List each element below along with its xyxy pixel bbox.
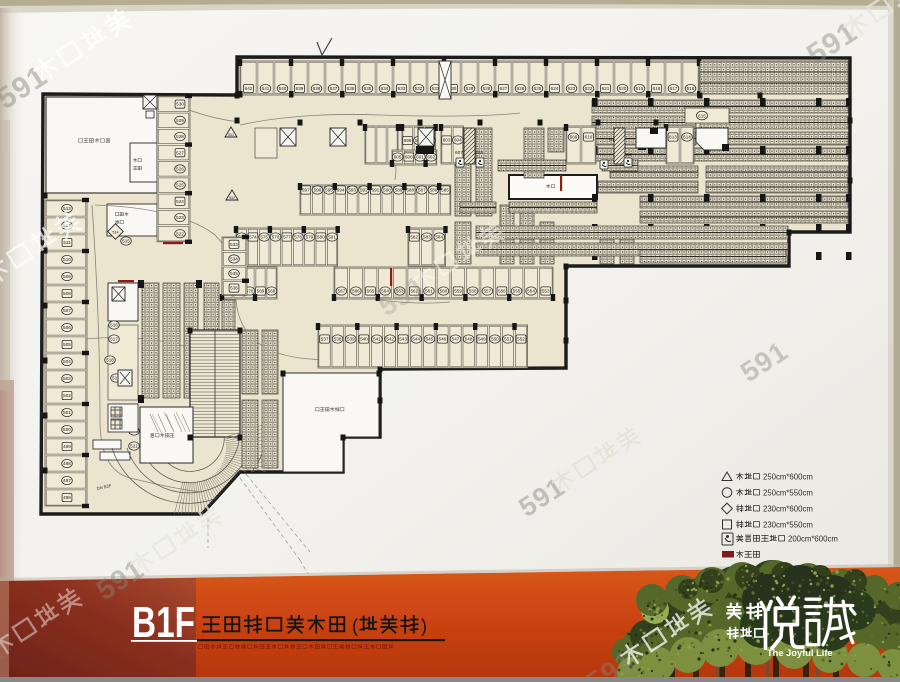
svg-text:510: 510 xyxy=(63,257,71,262)
svg-text:521: 521 xyxy=(130,444,138,449)
svg-text:634: 634 xyxy=(381,86,389,91)
svg-text:558: 558 xyxy=(469,289,477,294)
svg-text:574: 574 xyxy=(249,235,257,240)
svg-text:546: 546 xyxy=(439,337,447,342)
svg-text:616: 616 xyxy=(687,86,695,91)
svg-text:525: 525 xyxy=(176,183,184,188)
svg-text:590: 590 xyxy=(383,188,391,193)
svg-text:517: 517 xyxy=(110,337,118,342)
svg-text:607: 607 xyxy=(455,150,463,156)
svg-text:642: 642 xyxy=(245,86,253,91)
svg-text:545: 545 xyxy=(426,337,434,342)
svg-text:638: 638 xyxy=(313,86,321,91)
svg-text:528: 528 xyxy=(176,134,184,139)
svg-text:629: 629 xyxy=(466,86,474,91)
svg-text:633: 633 xyxy=(398,86,406,91)
svg-text:501: 501 xyxy=(63,410,71,415)
svg-text:531: 531 xyxy=(228,133,234,137)
svg-text:552: 552 xyxy=(517,337,525,342)
svg-text:533: 533 xyxy=(230,242,238,247)
svg-text:567: 567 xyxy=(337,289,345,294)
svg-text:557: 557 xyxy=(483,289,491,294)
svg-text:(: ( xyxy=(352,616,358,636)
svg-text:596: 596 xyxy=(314,188,322,193)
svg-text:554: 554 xyxy=(527,289,535,294)
svg-text:602: 602 xyxy=(427,155,435,160)
svg-text:527: 527 xyxy=(176,150,184,155)
svg-text:641: 641 xyxy=(262,86,270,91)
svg-text:615: 615 xyxy=(698,113,706,118)
svg-text:547: 547 xyxy=(452,337,460,342)
svg-text:577: 577 xyxy=(283,235,291,240)
svg-text:556: 556 xyxy=(498,289,506,294)
svg-text:624: 624 xyxy=(551,86,559,91)
svg-text:230cm*550cm: 230cm*550cm xyxy=(763,520,813,529)
svg-text:635: 635 xyxy=(364,86,372,91)
svg-text:518: 518 xyxy=(106,358,114,363)
svg-text:504: 504 xyxy=(63,359,71,364)
svg-text:583: 583 xyxy=(423,235,431,240)
svg-text:The Joyful Life: The Joyful Life xyxy=(767,648,833,658)
svg-text:623: 623 xyxy=(568,86,576,91)
svg-text:621: 621 xyxy=(602,86,610,91)
svg-text:511: 511 xyxy=(63,240,71,245)
svg-text:605: 605 xyxy=(394,155,402,160)
svg-text:502: 502 xyxy=(63,393,71,398)
svg-text:608: 608 xyxy=(475,150,483,156)
svg-text:579: 579 xyxy=(306,235,314,240)
svg-text:536: 536 xyxy=(230,286,238,291)
svg-text:618: 618 xyxy=(653,86,661,91)
svg-text:505: 505 xyxy=(63,342,71,347)
svg-text:535: 535 xyxy=(230,271,238,276)
svg-text:496: 496 xyxy=(63,495,71,500)
svg-text:581: 581 xyxy=(328,235,336,240)
svg-text:603: 603 xyxy=(443,138,451,143)
svg-text:230cm*600cm: 230cm*600cm xyxy=(763,504,813,513)
svg-text:594: 594 xyxy=(337,188,345,193)
svg-text:640: 640 xyxy=(279,86,287,91)
svg-text:539: 539 xyxy=(347,337,355,342)
svg-text:523: 523 xyxy=(176,215,184,220)
svg-text:617: 617 xyxy=(670,86,678,91)
svg-text:542: 542 xyxy=(386,337,394,342)
svg-text:636: 636 xyxy=(347,86,355,91)
svg-text:532: 532 xyxy=(229,196,235,200)
svg-text:B1F: B1F xyxy=(132,598,195,647)
svg-text:568: 568 xyxy=(268,289,276,294)
svg-text:606: 606 xyxy=(405,155,413,160)
svg-text:609: 609 xyxy=(570,135,578,140)
svg-text:593: 593 xyxy=(348,188,356,193)
svg-text:514: 514 xyxy=(112,231,118,235)
svg-text:613: 613 xyxy=(669,135,677,140)
svg-text:553: 553 xyxy=(542,289,550,294)
svg-text:503: 503 xyxy=(63,376,71,381)
svg-text:538: 538 xyxy=(334,337,342,342)
svg-text:601: 601 xyxy=(416,155,424,160)
svg-text:566: 566 xyxy=(352,289,360,294)
svg-text:584: 584 xyxy=(435,235,443,240)
svg-text:551: 551 xyxy=(504,337,512,342)
svg-text:524: 524 xyxy=(176,199,184,204)
svg-text:619: 619 xyxy=(636,86,644,91)
svg-text:530: 530 xyxy=(176,102,184,107)
svg-text:250cm*550cm: 250cm*550cm xyxy=(763,488,813,497)
svg-text:498: 498 xyxy=(63,461,71,466)
svg-text:499: 499 xyxy=(63,444,71,449)
svg-text:541: 541 xyxy=(373,337,381,342)
svg-text:626: 626 xyxy=(517,86,525,91)
svg-text:595: 595 xyxy=(325,188,333,193)
svg-text:578: 578 xyxy=(294,235,302,240)
svg-text:507: 507 xyxy=(63,308,71,313)
svg-text:526: 526 xyxy=(176,167,184,172)
svg-text:632: 632 xyxy=(415,86,423,91)
svg-text:610: 610 xyxy=(585,135,593,140)
svg-text:534: 534 xyxy=(230,257,238,262)
svg-text:500: 500 xyxy=(63,427,71,432)
svg-text:604: 604 xyxy=(454,138,462,143)
svg-text:582: 582 xyxy=(410,235,418,240)
svg-text:): ) xyxy=(421,616,427,636)
svg-text:540: 540 xyxy=(360,337,368,342)
svg-text:637: 637 xyxy=(330,86,338,91)
svg-text:589: 589 xyxy=(395,188,403,193)
svg-text:544: 544 xyxy=(412,337,420,342)
svg-text:513: 513 xyxy=(63,206,71,211)
svg-text:559: 559 xyxy=(454,289,462,294)
svg-text:548: 548 xyxy=(465,337,473,342)
svg-text:555: 555 xyxy=(513,289,521,294)
svg-text:515: 515 xyxy=(122,239,130,244)
svg-text:585: 585 xyxy=(441,188,449,193)
svg-text:569: 569 xyxy=(257,289,265,294)
svg-text:529: 529 xyxy=(176,118,184,123)
svg-text:620: 620 xyxy=(619,86,627,91)
svg-text:200cm*600cm: 200cm*600cm xyxy=(788,534,838,543)
svg-text:614: 614 xyxy=(683,135,691,140)
svg-text:576: 576 xyxy=(272,235,280,240)
svg-text:592: 592 xyxy=(360,188,368,193)
svg-text:625: 625 xyxy=(534,86,542,91)
svg-text:597: 597 xyxy=(302,188,310,193)
svg-text:550: 550 xyxy=(491,337,499,342)
svg-text:506: 506 xyxy=(63,325,71,330)
svg-text:509: 509 xyxy=(63,274,71,279)
svg-text:627: 627 xyxy=(500,86,508,91)
svg-text:497: 497 xyxy=(63,478,71,483)
svg-text:639: 639 xyxy=(296,86,304,91)
svg-text:591: 591 xyxy=(372,188,380,193)
svg-text:586: 586 xyxy=(430,188,438,193)
svg-text:537: 537 xyxy=(321,337,329,342)
svg-text:622: 622 xyxy=(585,86,593,91)
svg-text:587: 587 xyxy=(418,188,426,193)
svg-text:580: 580 xyxy=(317,235,325,240)
svg-text:628: 628 xyxy=(483,86,491,91)
svg-text:565: 565 xyxy=(367,289,375,294)
svg-text:588: 588 xyxy=(406,188,414,193)
svg-text:516: 516 xyxy=(110,323,118,328)
svg-text:250cm*600cm: 250cm*600cm xyxy=(763,472,813,481)
svg-text:522: 522 xyxy=(176,231,184,236)
svg-text:508: 508 xyxy=(63,291,71,296)
svg-text:549: 549 xyxy=(478,337,486,342)
svg-text:560: 560 xyxy=(440,289,448,294)
svg-text:575: 575 xyxy=(260,235,268,240)
svg-text:598: 598 xyxy=(404,138,412,143)
svg-text:543: 543 xyxy=(399,337,407,342)
